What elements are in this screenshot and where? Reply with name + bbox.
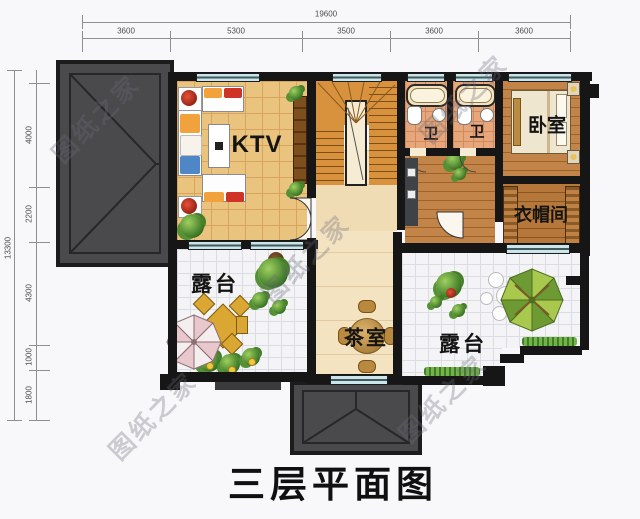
window	[455, 73, 493, 82]
window	[250, 241, 304, 250]
stair-flight-right	[369, 81, 397, 185]
plant	[272, 300, 286, 314]
nightstand	[567, 150, 580, 164]
bed-bench	[513, 98, 521, 146]
flower-plant	[446, 288, 456, 298]
sofa-cushion	[180, 135, 202, 156]
dim-tick	[29, 187, 50, 188]
cabinet	[293, 96, 307, 184]
watermark: 图纸之家	[43, 66, 148, 171]
wall	[520, 346, 582, 355]
wall	[590, 84, 599, 98]
window	[506, 244, 570, 254]
dim-tick	[29, 345, 50, 346]
dim-left-seg: 1000	[25, 347, 34, 367]
wall	[580, 254, 589, 350]
dim-left-total: 13300	[4, 236, 13, 260]
stepping-stone	[496, 286, 516, 306]
dim-tick	[29, 370, 50, 371]
dim-tick	[29, 83, 50, 84]
plant	[252, 292, 268, 308]
wall	[168, 72, 177, 382]
patio-item	[236, 316, 248, 334]
floor-corridor	[405, 156, 495, 245]
plant	[430, 296, 442, 308]
wall	[307, 250, 316, 384]
room-label-closet: 衣帽间	[514, 201, 568, 227]
room-label-bath-right: 卫	[469, 121, 484, 142]
door-opening	[460, 148, 476, 156]
dim-tick	[478, 31, 479, 52]
plant	[180, 214, 204, 238]
dim-top-seg: 3600	[116, 27, 136, 36]
wall	[307, 238, 316, 250]
plant	[289, 86, 303, 100]
room-label-terrace-right: 露台	[439, 328, 487, 358]
plant	[289, 182, 303, 196]
sofa-cushion	[204, 88, 222, 98]
dim-line-left-total	[14, 70, 15, 420]
wall	[447, 72, 453, 148]
floor-plan-canvas: 19600 3600 5300 3500 3600 3600 13300 400…	[0, 0, 640, 519]
page-title: 三层平面图	[228, 454, 438, 508]
dim-line-top-total	[82, 22, 570, 23]
room-label-bath-left: 卫	[423, 123, 438, 144]
stair-landing	[316, 185, 397, 231]
flower-dot	[206, 362, 214, 370]
window	[407, 73, 445, 82]
dim-top-seg: 3600	[424, 27, 444, 36]
flower-plant	[181, 90, 197, 106]
window	[332, 73, 382, 82]
wall	[397, 148, 405, 230]
room-label-tea: 茶室	[344, 322, 388, 351]
room-label-terrace-left: 露台	[191, 268, 239, 298]
nightstand	[567, 82, 580, 96]
room-label-ktv: KTV	[232, 131, 283, 159]
dim-tick	[302, 31, 303, 52]
wall-ledge	[215, 382, 281, 390]
wall	[307, 72, 316, 198]
room-label-bedroom: 卧室	[528, 111, 566, 138]
window	[196, 73, 260, 82]
dim-top-seg: 3500	[336, 27, 356, 36]
dim-tick	[29, 420, 50, 421]
wall	[495, 176, 590, 184]
dim-tick	[570, 31, 571, 52]
dim-tick	[29, 242, 50, 243]
flower-plant	[181, 198, 197, 214]
flower-dot	[248, 358, 256, 366]
window	[188, 241, 242, 250]
sofa-cushion	[180, 156, 200, 174]
plant	[258, 258, 288, 288]
wall	[495, 184, 503, 222]
counter-sink	[407, 168, 416, 177]
dim-top-total: 19600	[314, 10, 338, 19]
dim-left-seg: 4300	[25, 283, 34, 303]
dim-tick	[390, 31, 391, 52]
dim-top-seg: 3600	[514, 27, 534, 36]
sofa-cushion	[226, 192, 244, 202]
stair-flight-left	[316, 125, 344, 185]
plant	[454, 168, 466, 180]
stepping-stone	[488, 272, 504, 288]
dim-top-seg: 5300	[226, 27, 246, 36]
wall	[393, 232, 402, 384]
wall	[402, 376, 485, 385]
dim-tick	[170, 31, 171, 52]
dim-tick	[7, 70, 22, 71]
wall	[495, 72, 503, 184]
grass-strip	[522, 337, 577, 346]
wall	[168, 372, 316, 382]
stepping-stone	[507, 278, 518, 289]
dim-left-seg: 1800	[25, 385, 34, 405]
grass-strip	[424, 367, 480, 376]
dim-left-seg: 2200	[25, 204, 34, 224]
table-item	[215, 142, 223, 150]
stair-well-panel	[345, 100, 367, 186]
bathtub	[406, 84, 449, 107]
window	[508, 73, 572, 82]
wall	[580, 72, 590, 256]
sofa-cushion	[180, 114, 200, 133]
plant	[452, 304, 465, 317]
roof-left	[58, 62, 172, 265]
dim-left-seg: 4000	[25, 125, 34, 145]
dim-line-left-segments	[36, 70, 37, 420]
dim-tick	[570, 15, 571, 29]
bathtub	[455, 84, 496, 107]
stool	[358, 300, 376, 313]
stepping-stone	[492, 306, 507, 321]
sofa-cushion	[204, 192, 224, 202]
counter-sink	[407, 190, 416, 199]
door-opening	[410, 148, 426, 156]
wall	[397, 72, 405, 156]
toilet	[407, 106, 422, 125]
wall-pillar	[160, 374, 180, 390]
wall	[500, 354, 524, 363]
dim-tick	[7, 420, 22, 421]
dim-line-top-segments	[82, 38, 570, 39]
window	[330, 375, 388, 385]
stepping-stone	[480, 292, 493, 305]
dim-tick	[82, 15, 83, 29]
dim-tick	[82, 31, 83, 52]
wall	[566, 276, 582, 285]
roof-bottom	[292, 383, 420, 453]
sink	[432, 108, 446, 122]
stool	[358, 360, 376, 373]
wall-pillar	[483, 366, 505, 386]
sofa-cushion	[224, 88, 242, 98]
